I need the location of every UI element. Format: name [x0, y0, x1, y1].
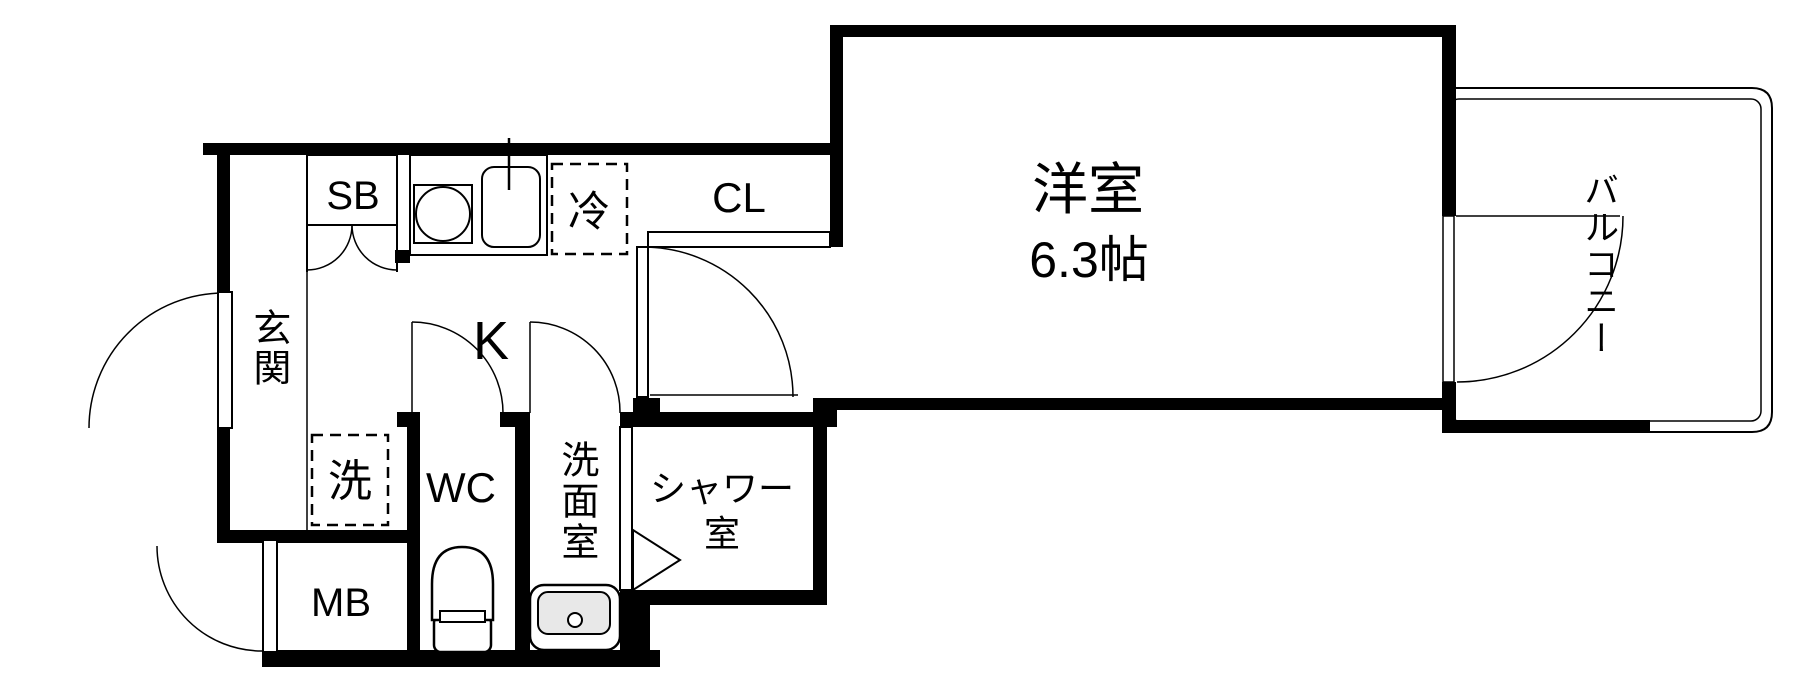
wall — [830, 25, 843, 247]
meter-box-door-icon — [157, 540, 277, 652]
wall — [813, 398, 827, 605]
wall — [515, 427, 530, 650]
room-label-washer: 洗 — [328, 457, 372, 508]
walls — [203, 25, 1650, 667]
shower-partition — [620, 427, 632, 590]
western-room-door-icon — [637, 247, 798, 397]
room-label-kitchen: K — [473, 310, 509, 372]
wall — [500, 412, 530, 427]
room-label-western-room-size: 6.3帖 — [1029, 232, 1149, 290]
washbasin-icon — [530, 585, 620, 650]
room-label-shower-room: シャワー 室 — [650, 466, 794, 556]
room-label-closet: CL — [712, 174, 766, 222]
wall — [633, 398, 660, 427]
front-door-icon — [89, 292, 232, 428]
wall — [217, 428, 230, 530]
washroom-door-icon — [530, 322, 620, 413]
room-label-refrigerator: 冷 — [568, 188, 610, 236]
kitchen-sink-icon — [482, 167, 540, 247]
wall — [217, 530, 407, 543]
room-label-balcony: バルコニー — [1578, 172, 1618, 357]
kitchen-counter-icon — [410, 138, 547, 255]
wall — [620, 590, 650, 667]
toilet-icon — [432, 547, 493, 652]
wall — [407, 427, 420, 667]
room-label-entrance: 玄関 — [245, 308, 289, 388]
room-label-meter-box: MB — [311, 580, 371, 626]
wall — [217, 143, 230, 292]
stove-icon — [414, 185, 472, 243]
wall — [203, 143, 843, 155]
wall — [620, 590, 827, 605]
room-label-toilet: WC — [426, 464, 496, 512]
wall — [813, 398, 1456, 410]
room-label-western-room: 洋室 — [1032, 158, 1144, 222]
room-label-washroom: 洗面室 — [553, 440, 597, 563]
room-label-shoe-box: SB — [326, 173, 379, 219]
wall — [830, 25, 1456, 37]
floorplan: 玄関 SB K 冷 CL 洋室 6.3帖 洗 WC MB 洗面室 シャワー 室 … — [0, 0, 1815, 690]
closet-door-icon — [648, 232, 830, 247]
wall — [397, 412, 420, 427]
